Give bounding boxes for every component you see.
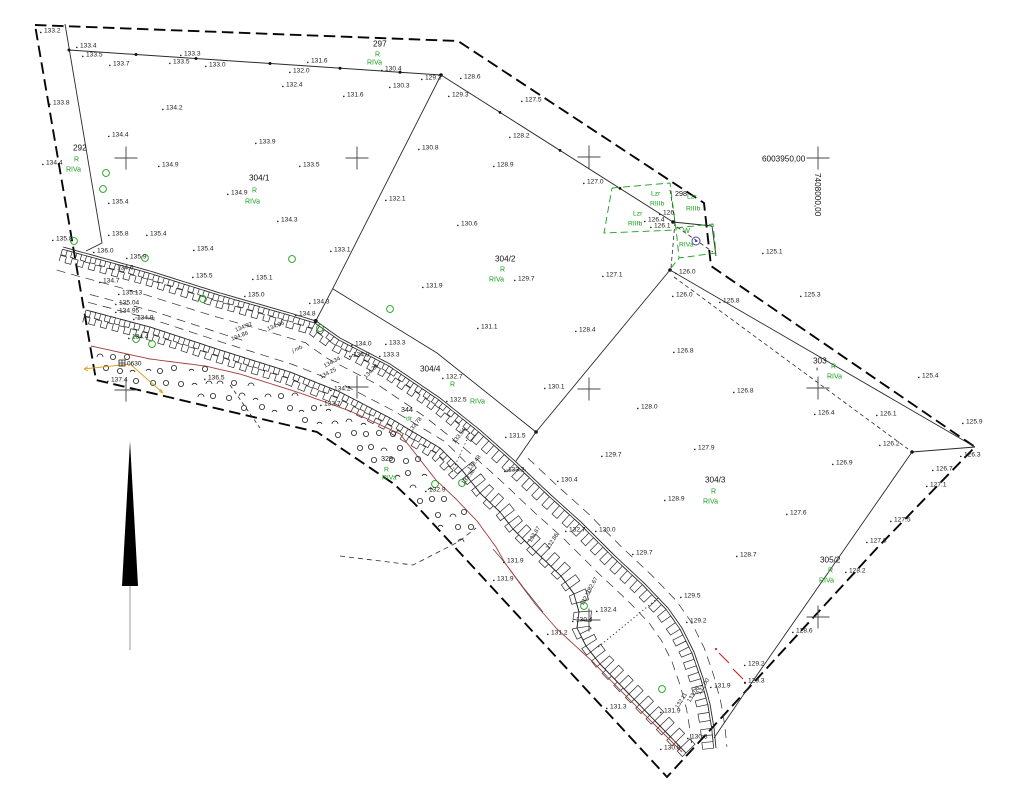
svg-text:135.04: 135.04	[119, 299, 140, 306]
svg-text:Lzr: Lzr	[633, 211, 643, 218]
svg-text:135.4: 135.4	[197, 245, 214, 252]
svg-text:129.3: 129.3	[748, 677, 765, 684]
svg-text:126.1: 126.1	[654, 222, 671, 229]
svg-text:127.1: 127.1	[606, 271, 623, 278]
svg-text:135.8: 135.8	[112, 230, 129, 237]
svg-text:130.8: 130.8	[664, 744, 681, 751]
svg-text:R: R	[500, 267, 505, 274]
svg-text:125.1: 125.1	[766, 248, 783, 255]
svg-text:127.1: 127.1	[930, 481, 947, 488]
svg-text:133.5: 133.5	[173, 58, 190, 65]
svg-text:131.3: 131.3	[610, 703, 627, 710]
svg-text:133.2: 133.2	[44, 27, 61, 34]
svg-text:R: R	[384, 467, 389, 474]
svg-text:130.3: 130.3	[393, 82, 410, 89]
svg-text:125.4: 125.4	[922, 372, 939, 379]
svg-text:129.7: 129.7	[518, 275, 535, 282]
svg-text:135.4: 135.4	[150, 230, 167, 237]
svg-text:126.7: 126.7	[936, 465, 953, 472]
svg-text:R: R	[375, 52, 380, 59]
svg-text:130.0: 130.0	[599, 526, 616, 533]
svg-text:133.5: 133.5	[86, 51, 103, 58]
svg-text:126.8: 126.8	[737, 387, 754, 394]
svg-text:RIVa: RIVa	[66, 167, 81, 174]
svg-text:304/3: 304/3	[705, 476, 726, 485]
svg-text:W: W	[683, 226, 690, 235]
svg-text:132.7: 132.7	[446, 373, 463, 380]
svg-text:130.8: 130.8	[422, 144, 439, 151]
svg-text:126.0: 126.0	[676, 291, 693, 298]
svg-text:128.4: 128.4	[579, 326, 596, 333]
svg-text:135.8: 135.8	[56, 235, 73, 242]
svg-text:130.4: 130.4	[385, 65, 402, 72]
svg-text:134.4: 134.4	[132, 333, 149, 340]
svg-text:128.2: 128.2	[513, 132, 530, 139]
svg-text:Lzr: Lzr	[651, 191, 661, 198]
svg-text:130.6: 130.6	[461, 220, 478, 227]
svg-text:292: 292	[73, 144, 87, 153]
svg-text:R: R	[74, 157, 79, 164]
svg-text:128.6: 128.6	[796, 627, 813, 634]
svg-text:RIVa: RIVa	[827, 374, 842, 381]
svg-text:129.2: 129.2	[690, 617, 707, 624]
svg-text:RIIfb: RIIfb	[628, 221, 643, 228]
svg-text:126.: 126.	[663, 209, 676, 216]
svg-text:130.4: 130.4	[561, 476, 578, 483]
svg-text:134.9: 134.9	[162, 161, 179, 168]
svg-text:133.8: 133.8	[53, 99, 70, 106]
svg-text:127.6: 127.6	[790, 509, 807, 516]
svg-text:134.95: 134.95	[119, 307, 140, 314]
svg-text:126.8: 126.8	[677, 347, 694, 354]
svg-text:129.7: 129.7	[636, 549, 653, 556]
svg-text:135.9: 135.9	[130, 253, 147, 260]
svg-text:127.9: 127.9	[698, 444, 715, 451]
svg-text:134.3: 134.3	[281, 216, 298, 223]
svg-text:RIVa: RIVa	[489, 277, 504, 284]
svg-text:129.3: 129.3	[425, 74, 442, 81]
svg-text:133.0: 133.0	[209, 61, 226, 68]
svg-text:Lzr: Lzr	[687, 194, 697, 201]
svg-text:129.3: 129.3	[452, 91, 469, 98]
svg-text:129.5: 129.5	[684, 592, 701, 599]
svg-text:135.4: 135.4	[112, 198, 129, 205]
svg-text:304/2: 304/2	[495, 255, 516, 264]
svg-text:dr: dr	[406, 416, 413, 423]
svg-text:132.7: 132.7	[569, 526, 586, 533]
svg-text:127.5: 127.5	[525, 96, 542, 103]
svg-text:R: R	[831, 364, 836, 371]
svg-text:RIVa: RIVa	[679, 242, 694, 249]
svg-text:RIVa: RIVa	[382, 475, 397, 482]
svg-text:133.4: 133.4	[80, 42, 97, 49]
svg-text:128.7: 128.7	[740, 551, 757, 558]
svg-text:126.2: 126.2	[883, 440, 900, 447]
svg-text:132.1: 132.1	[389, 195, 406, 202]
svg-text:126.1: 126.1	[880, 410, 897, 417]
svg-text:RIVa: RIVa	[367, 60, 382, 67]
svg-text:135.13: 135.13	[122, 289, 143, 296]
svg-text:128.6: 128.6	[464, 73, 481, 80]
svg-text:134.8: 134.8	[299, 310, 316, 317]
svg-text:6003950,00: 6003950,00	[762, 155, 806, 164]
svg-text:128.9: 128.9	[497, 161, 514, 168]
svg-text:135.0: 135.0	[248, 291, 265, 298]
svg-text:133.7: 133.7	[113, 60, 130, 67]
svg-text:134.9: 134.9	[353, 351, 370, 358]
svg-text:127.5: 127.5	[894, 516, 911, 523]
svg-text:130.3: 130.3	[691, 733, 708, 740]
svg-text:133.3: 133.3	[389, 339, 406, 346]
svg-text:135.5: 135.5	[196, 272, 213, 279]
svg-text:134.3: 134.3	[313, 298, 330, 305]
svg-text:125.3: 125.3	[804, 291, 821, 298]
svg-text:125.9: 125.9	[966, 418, 983, 425]
svg-text:132.4: 132.4	[286, 81, 303, 88]
svg-text:129.2: 129.2	[748, 660, 765, 667]
svg-text:R: R	[711, 489, 716, 496]
svg-text:304/1: 304/1	[249, 174, 270, 183]
svg-text:134.4: 134.4	[46, 159, 63, 166]
svg-text:125.8: 125.8	[723, 297, 740, 304]
svg-text:131.6: 131.6	[311, 57, 328, 64]
svg-text:303: 303	[813, 357, 827, 366]
svg-text:132.9: 132.9	[429, 486, 446, 493]
svg-text:129.7: 129.7	[605, 451, 622, 458]
svg-text:298: 298	[675, 189, 687, 198]
svg-text:134.6: 134.6	[117, 264, 134, 271]
svg-text:130.4: 130.4	[576, 616, 593, 623]
svg-text:344: 344	[401, 405, 413, 414]
svg-text:R: R	[252, 188, 257, 195]
svg-text:RIIIb: RIIIb	[686, 206, 701, 213]
svg-text:304/4: 304/4	[420, 365, 441, 374]
svg-text:131.9: 131.9	[507, 557, 524, 564]
svg-text:137.4: 137.4	[111, 376, 128, 383]
svg-text:131.6: 131.6	[347, 91, 364, 98]
svg-text:134.0: 134.0	[355, 340, 372, 347]
svg-text:126.4: 126.4	[818, 409, 835, 416]
svg-text:131.2: 131.2	[551, 629, 568, 636]
svg-text:133.9: 133.9	[259, 138, 276, 145]
svg-text:126.3: 126.3	[964, 451, 981, 458]
svg-text:R: R	[828, 568, 833, 575]
svg-text:130.1: 130.1	[548, 383, 565, 390]
svg-text:R: R	[450, 382, 455, 389]
svg-text:RIIIb: RIIIb	[650, 201, 665, 208]
svg-text:128.9: 128.9	[668, 495, 685, 502]
svg-text:134.4: 134.4	[112, 131, 129, 138]
svg-text:297: 297	[373, 40, 387, 49]
svg-text:RIVa: RIVa	[245, 199, 260, 206]
svg-text:133.7: 133.7	[324, 400, 341, 407]
svg-text:136.5: 136.5	[208, 374, 225, 381]
svg-text:126.9: 126.9	[836, 459, 853, 466]
svg-text:133.3: 133.3	[184, 50, 201, 57]
svg-text:134.7: 134.7	[103, 277, 120, 284]
svg-text:127.0: 127.0	[587, 178, 604, 185]
svg-text:134.2: 134.2	[166, 104, 183, 111]
svg-text:132.0: 132.0	[293, 67, 310, 74]
svg-text:134.9: 134.9	[231, 189, 248, 196]
svg-text:131.9: 131.9	[426, 282, 443, 289]
svg-text:133.1: 133.1	[334, 246, 351, 253]
svg-text:128.2: 128.2	[849, 567, 866, 574]
svg-text:131.5: 131.5	[509, 432, 526, 439]
svg-text:RIVa: RIVa	[703, 499, 718, 506]
svg-text:RIVa: RIVa	[819, 578, 834, 585]
svg-text:329: 329	[381, 454, 393, 463]
svg-text:132.5: 132.5	[450, 396, 467, 403]
svg-text:136.0: 136.0	[97, 247, 114, 254]
svg-text:131.9: 131.9	[497, 575, 514, 582]
svg-text:RIVa: RIVa	[470, 399, 485, 406]
svg-text:305/2: 305/2	[820, 556, 841, 565]
svg-text:0630: 0630	[127, 360, 142, 367]
svg-text:131.9: 131.9	[714, 682, 731, 689]
svg-text:127.8: 127.8	[870, 537, 887, 544]
svg-text:128.0: 128.0	[641, 403, 658, 410]
svg-text:131.1: 131.1	[481, 323, 498, 330]
svg-text:134.2: 134.2	[334, 385, 351, 392]
svg-text:135.1: 135.1	[256, 274, 273, 281]
svg-text:126.0: 126.0	[679, 268, 696, 275]
svg-text:133.3: 133.3	[383, 351, 400, 358]
svg-text:132.4: 132.4	[600, 606, 617, 613]
svg-text:7408000,00: 7408000,00	[813, 173, 822, 217]
svg-text:133.5: 133.5	[303, 161, 320, 168]
